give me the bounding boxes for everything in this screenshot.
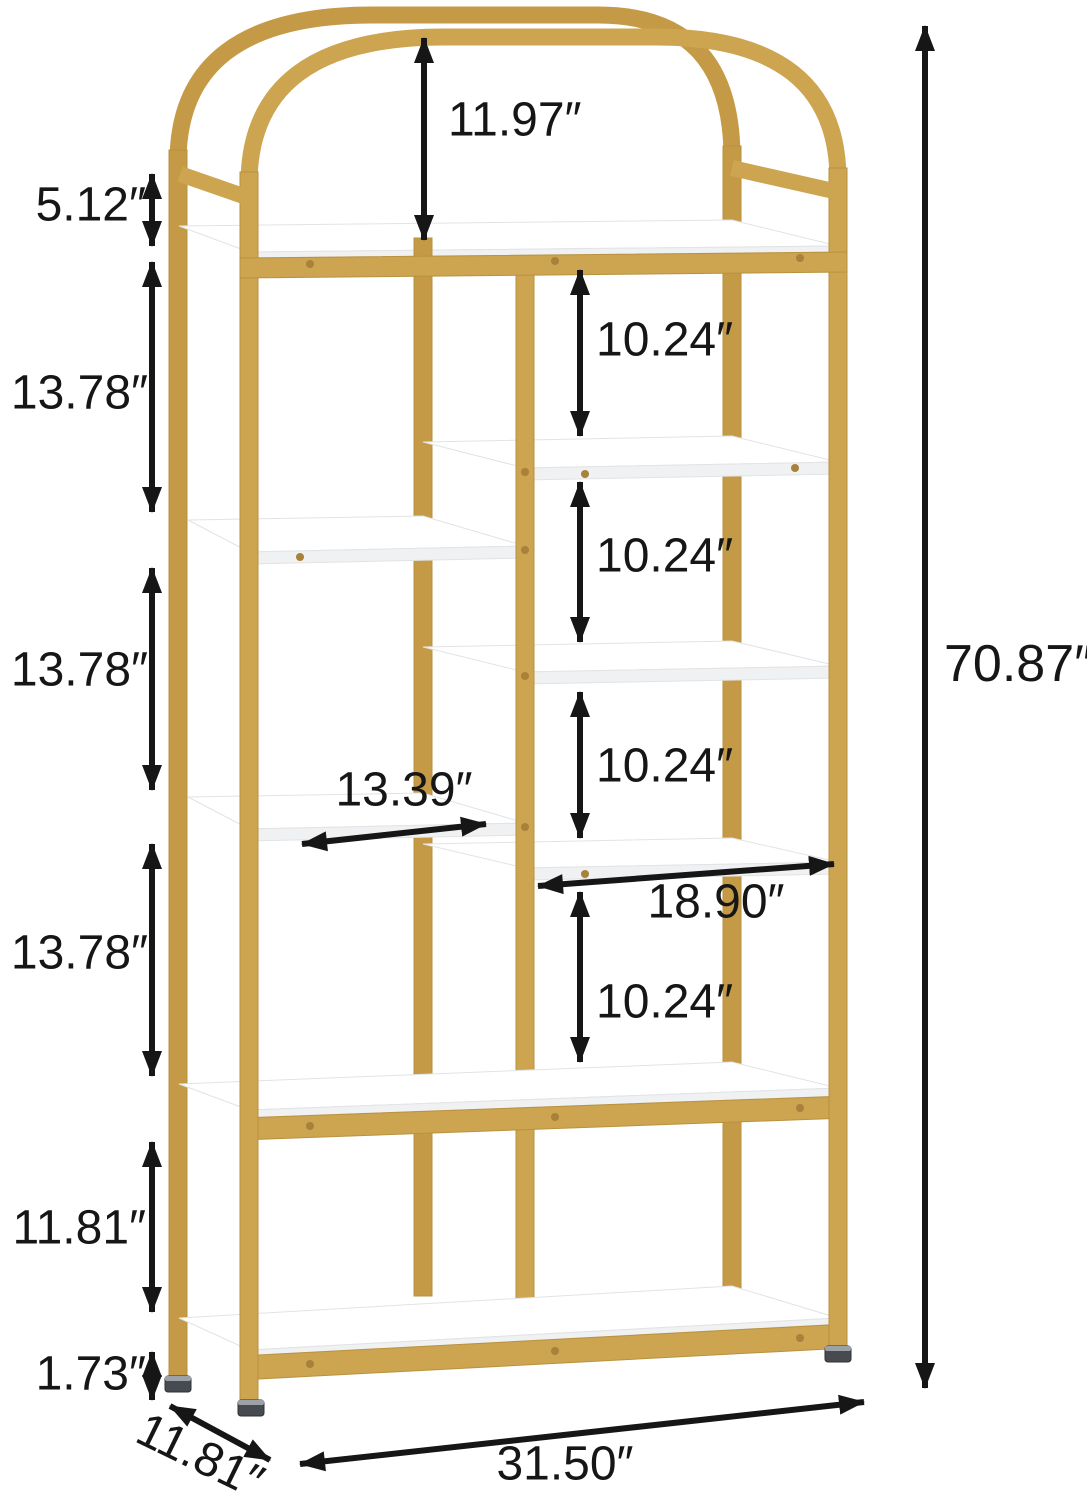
dim-label-right-gap-4: 10.24″: [596, 976, 733, 1029]
base-shelf: [179, 1286, 847, 1380]
right-shelf-2: [423, 641, 838, 684]
left-side-rail: [180, 174, 249, 198]
top-shelf: [179, 220, 838, 258]
back-left-post: [169, 150, 187, 1378]
dim-label-overall-height: 70.87″: [944, 635, 1087, 693]
dim-label-lower-section: 11.81″: [12, 1202, 146, 1255]
front-right-foot: [825, 1346, 851, 1362]
dim-label-arch-height: 11.97″: [448, 94, 582, 147]
bookshelf-dimension-diagram: 5.12″ 13.78″ 13.78″ 13.78″ 11.81″ 1.73″ …: [0, 0, 1087, 1500]
front-left-foot: [238, 1400, 264, 1416]
dim-label-top-frame-height: 5.12″: [36, 179, 146, 232]
front-left-post: [240, 172, 258, 1402]
dim-label-overall-depth: 11.81″: [128, 1403, 271, 1500]
bottom-full-shelf: [179, 1062, 847, 1140]
dim-label-left-gap-2: 13.78″: [11, 644, 148, 697]
right-side-rail: [732, 168, 838, 192]
right-shelf-3: [423, 838, 838, 880]
dim-label-right-gap-2: 10.24″: [596, 530, 733, 583]
right-shelf-1: [423, 436, 838, 480]
dim-label-right-gap-3: 10.24″: [596, 740, 733, 793]
diagram-canvas: 5.12″ 13.78″ 13.78″ 13.78″ 11.81″ 1.73″ …: [0, 0, 1087, 1500]
dim-label-left-shelf-width: 13.39″: [335, 764, 472, 817]
dim-label-overall-width: 31.50″: [496, 1438, 633, 1491]
dim-label-left-gap-1: 13.78″: [11, 367, 148, 420]
back-left-foot: [165, 1376, 191, 1392]
dim-label-left-gap-3: 13.78″: [11, 927, 148, 980]
left-shelf-1: [188, 516, 525, 564]
dim-label-base-height: 1.73″: [36, 1348, 146, 1401]
dim-label-right-shelf-width: 18.90″: [647, 876, 784, 929]
middle-front-post: [516, 262, 534, 1338]
front-right-post: [829, 168, 847, 1346]
dim-label-right-gap-1: 10.24″: [596, 314, 733, 367]
